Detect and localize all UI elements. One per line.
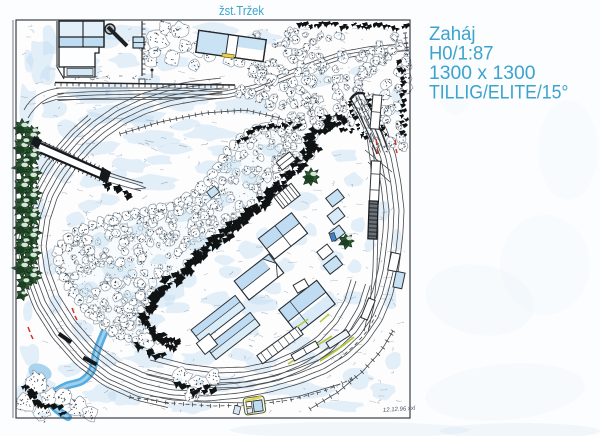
svg-text:TILLIG/ELITE/15°: TILLIG/ELITE/15° [429, 83, 569, 104]
svg-text:Zaháj: Zaháj [429, 24, 476, 45]
svg-text:H0/1:87: H0/1:87 [429, 44, 494, 65]
svg-text:1300 x 1300: 1300 x 1300 [429, 63, 536, 84]
svg-text:žst.Tržek: žst.Tržek [219, 3, 264, 18]
